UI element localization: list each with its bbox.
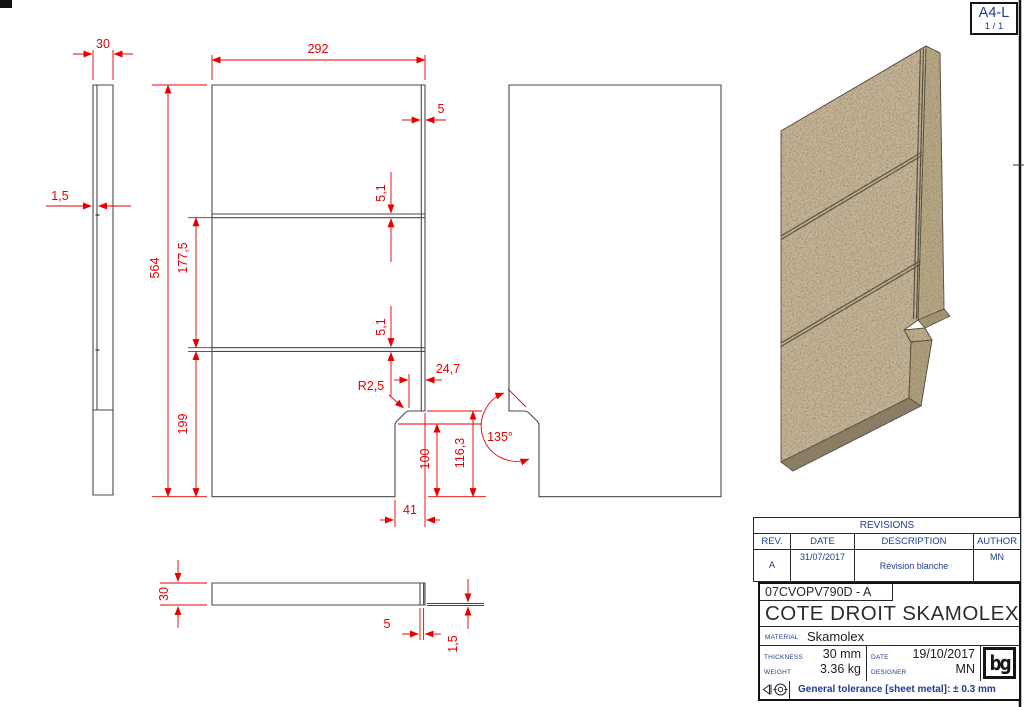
drawing-title: COTE DROIT SKAMOLEX <box>760 601 1019 627</box>
designer-label: DESIGNER <box>871 669 907 676</box>
dim-side-groove-depth: 1,5 <box>51 189 68 203</box>
general-tolerance: General tolerance [sheet metal]: ± 0.3 m… <box>790 681 1019 699</box>
dim-side-thickness: 30 <box>96 37 110 51</box>
company-logo-cell: bg <box>981 646 1019 681</box>
iso-front-face <box>781 46 926 462</box>
material-value: Skamolex <box>807 629 864 644</box>
designer-value: MN <box>956 662 975 676</box>
rear-view <box>509 85 721 497</box>
dim-plan-groove-depth: 1,5 <box>446 635 460 652</box>
dim-segment-mid: 177,5 <box>176 242 190 273</box>
date-designer-cell: DATE 19/10/2017 DESIGNER MN <box>867 646 981 681</box>
dim-overall-height: 564 <box>148 258 162 279</box>
isometric-view <box>781 46 950 471</box>
sheet-format: A4-L <box>972 5 1016 21</box>
thickness-label: THICKNESS <box>764 654 803 661</box>
title-block: 07CVOPV790D - A COTE DROIT SKAMOLEX MATE… <box>758 582 1021 701</box>
drawing-sheet: 30 1,5 292 5 5,1 5,1 564 177,5 199 24,7 … <box>0 0 1024 707</box>
revisions-col-description: DESCRIPTION <box>855 534 974 550</box>
dim-edge-groove-offset: 5 <box>438 102 445 116</box>
dim-notch-inner-height: 100 <box>418 449 432 470</box>
dim-groove-width-mid: 5,1 <box>374 318 388 335</box>
sheet-page-number: 1 / 1 <box>972 21 1016 32</box>
date-label: DATE <box>871 654 889 661</box>
tolerance-row: General tolerance [sheet metal]: ± 0.3 m… <box>760 681 1019 699</box>
dim-plan-groove-width: 5 <box>384 617 391 631</box>
revisions-title: REVISIONS <box>754 518 1020 534</box>
part-number: 07CVOPV790D - A <box>760 584 893 601</box>
revision-row-date: 31/07/2017 <box>791 550 855 581</box>
side-view <box>93 85 113 495</box>
revision-row-author: MN <box>974 550 1020 581</box>
sheet-format-box: A4-L 1 / 1 <box>970 2 1018 35</box>
first-angle-projection-icon <box>760 681 789 698</box>
dimension-labels: 30 1,5 292 5 5,1 5,1 564 177,5 199 24,7 … <box>51 37 513 653</box>
company-logo: bg <box>983 647 1016 679</box>
dim-fillet-radius: R2,5 <box>358 379 384 393</box>
revisions-col-rev: REV. <box>754 534 791 550</box>
thickness-weight-cell: THICKNESS 30 mm WEIGHT 3.36 kg <box>760 646 867 681</box>
weight-value: 3.36 kg <box>820 662 861 676</box>
revisions-col-author: AUTHOR <box>974 534 1020 550</box>
dim-notch-angle: 135° <box>487 430 513 444</box>
bottom-view <box>212 583 425 605</box>
revisions-table: REVISIONS REV. DATE DESCRIPTION AUTHOR A… <box>753 517 1021 582</box>
weight-label: WEIGHT <box>764 669 791 676</box>
dim-groove-width-top: 5,1 <box>374 184 388 201</box>
dim-front-width: 292 <box>308 42 329 56</box>
dim-notch-top-offset: 24,7 <box>436 362 460 376</box>
material-label: MATERIAL <box>765 634 799 641</box>
dim-plan-thickness: 30 <box>157 587 171 601</box>
thickness-value: 30 mm <box>823 647 861 661</box>
front-view <box>212 85 425 497</box>
material-row: MATERIAL Skamolex <box>760 627 1019 646</box>
dim-notch-height: 116,3 <box>453 438 467 468</box>
date-value: 19/10/2017 <box>912 647 975 661</box>
dim-notch-width: 41 <box>403 503 417 517</box>
projection-symbol-cell <box>760 681 790 699</box>
dim-segment-bottom: 199 <box>176 414 190 435</box>
iso-lower-edge-face <box>909 340 932 406</box>
revisions-col-date: DATE <box>791 534 855 550</box>
revision-row-description: Révision blanche <box>855 550 974 581</box>
dimension-lines <box>46 50 529 640</box>
revision-row-rev: A <box>754 550 791 581</box>
